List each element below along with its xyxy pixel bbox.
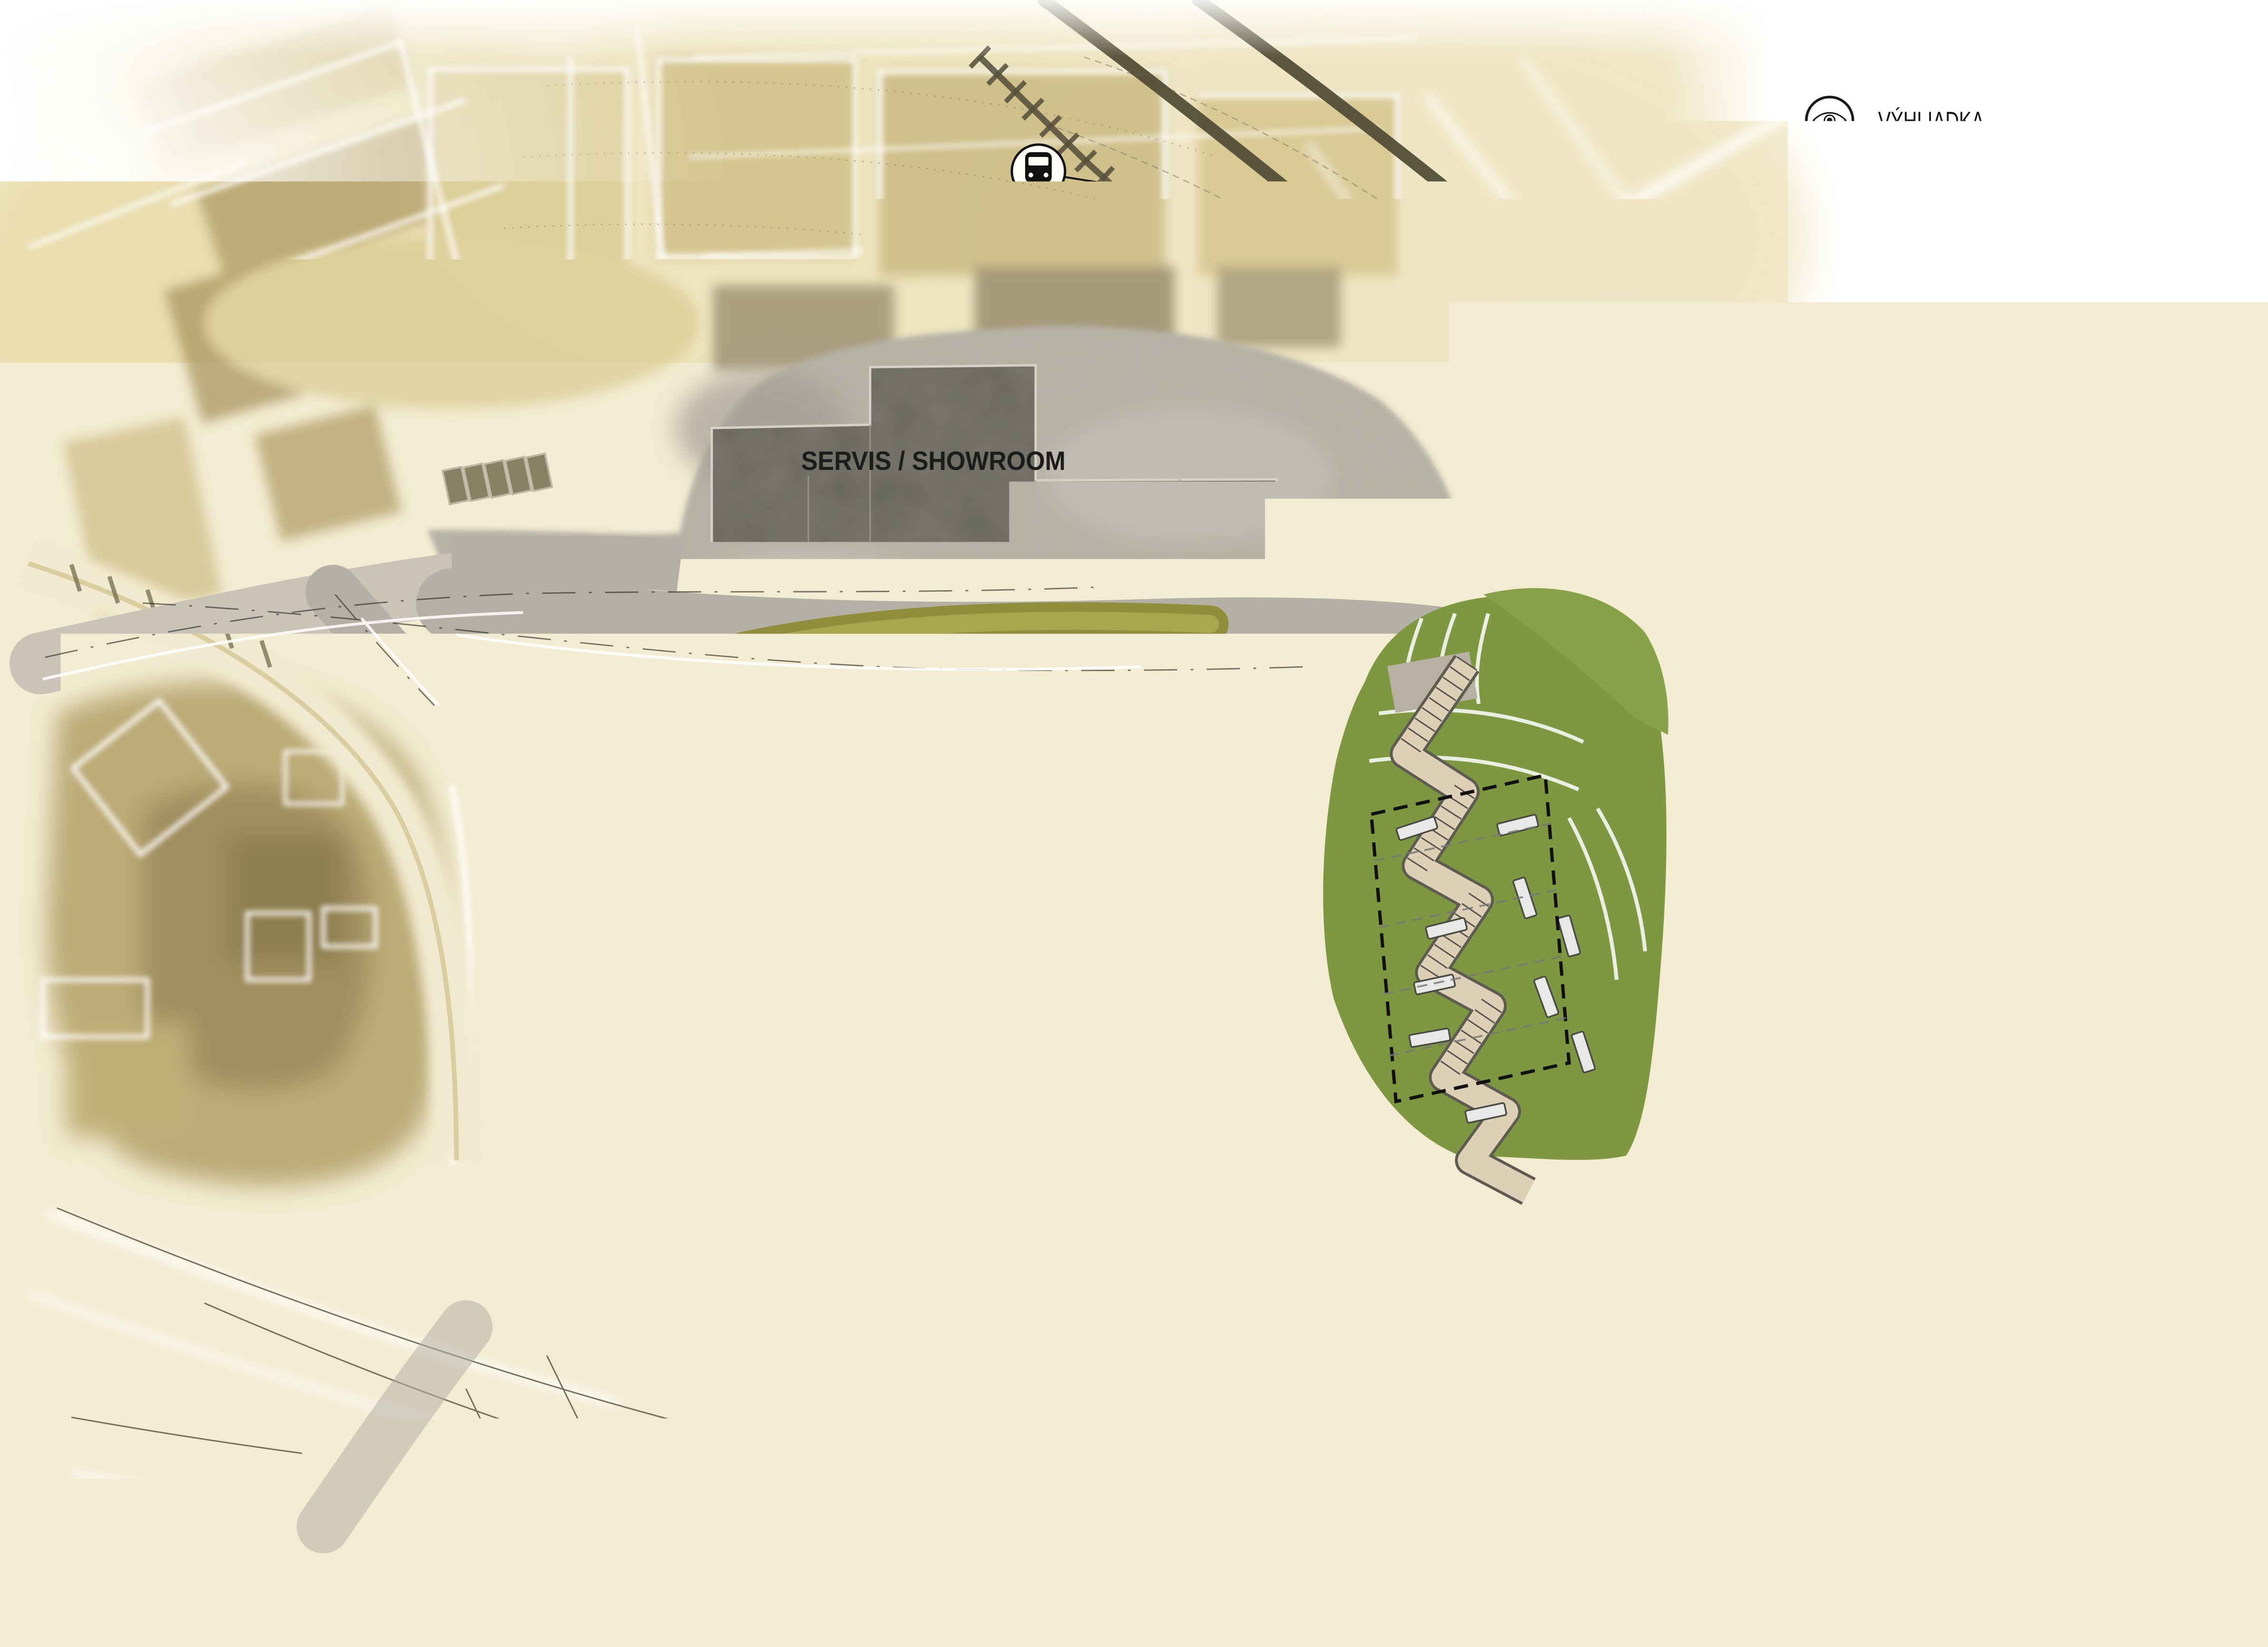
svg-text:8: 8 [1850,1331,1859,1350]
svg-text:VÝHLIADKA: VÝHLIADKA [1878,106,1984,136]
svg-text:SMER: SMER [1493,425,1563,456]
svg-text:0: 0 [1766,1331,1776,1350]
svg-text:HLAVNÝ VSTUP DO OBJEKTU: HLAVNÝ VSTUP DO OBJEKTU [1878,910,2160,940]
svg-text:CHODNÍK PRE CHODCOV: CHODNÍK PRE CHODCOV [1878,473,2119,502]
svg-text:253,83 m: 253,83 m [2111,1095,2191,1124]
svg-text:16: 16 [1928,1331,1947,1350]
svg-text:2: 2 [2197,1033,2207,1053]
svg-text:m: m [1995,1334,2007,1350]
svg-text:R1: R1 [1493,201,1531,234]
svg-text:BANSKEJ BYSTRICE: BANSKEJ BYSTRICE [212,556,451,587]
svg-text:SEDENIE: SEDENIE [1878,228,1964,258]
svg-text:ŽELEZNICA: ŽELEZNICA [1878,786,1991,816]
svg-text:BETONÁREŇ: BETONÁREŇ [1352,1473,1506,1502]
svg-text:RÓMSKY: RÓMSKY [885,970,998,997]
svg-text:SCHODISKO: SCHODISKO [1878,167,1994,196]
svg-text:POKLADŇA - MÚZEUM: POKLADŇA - MÚZEUM [1878,351,2089,380]
svg-text:12: 12 [1886,1331,1905,1350]
svg-text:HRANICA RIŠENÉHO ÚZEMIA: HRANICA RIŠENÉHO ÚZEMIA [1878,727,2158,756]
svg-text:VOJENSKÝ CINTORÍN: VOJENSKÝ CINTORÍN [1878,595,2082,624]
svg-text:CINTORÍN: CINTORÍN [1020,1240,1134,1268]
svg-text:1127,38 m: 1127,38 m [2106,1035,2194,1064]
svg-text:2: 2 [2194,1092,2204,1112]
svg-text:INFORMÁCIE: INFORMÁCIE [1878,289,2000,319]
svg-text:SMER Z CENTRA: SMER Z CENTRA [211,497,411,528]
svg-text:20: 20 [1969,1331,1988,1350]
svg-text:ZASTAVANÁ PLOCHA: ZASTAVANÁ PLOCHA [1878,1035,2081,1064]
svg-text:PARKOVISKO: PARKOVISKO [1878,656,2008,686]
svg-text:RÝCHLOSTNÁ KOMUNIKÁCIA R1: RÝCHLOSTNÁ KOMUNIKÁCIA R1 [1878,848,2188,877]
svg-text:SPEVNENÉ PLOCHY: SPEVNENÉ PLOCHY [1878,1095,2074,1124]
svg-text:CIVILNÝ: CIVILNÝ [1020,1210,1111,1238]
svg-text:PARK: PARK [1878,412,1929,441]
svg-text:CHODNÍK PRE INVALIDOV: CHODNÍK PRE INVALIDOV [1878,534,2125,564]
svg-text:4: 4 [1808,1331,1817,1350]
svg-text:SMER Z PRIEMYSELNEJ ZÓNY: SMER Z PRIEMYSELNEJ ZÓNY [380,1414,756,1445]
svg-text:CINTORÍN: CINTORÍN [885,1002,1018,1029]
svg-text:BREZNO: BREZNO [1493,482,1593,513]
svg-text:SMER Z VLAKOVEJ STANICE: SMER Z VLAKOVEJ STANICE [218,1283,558,1314]
